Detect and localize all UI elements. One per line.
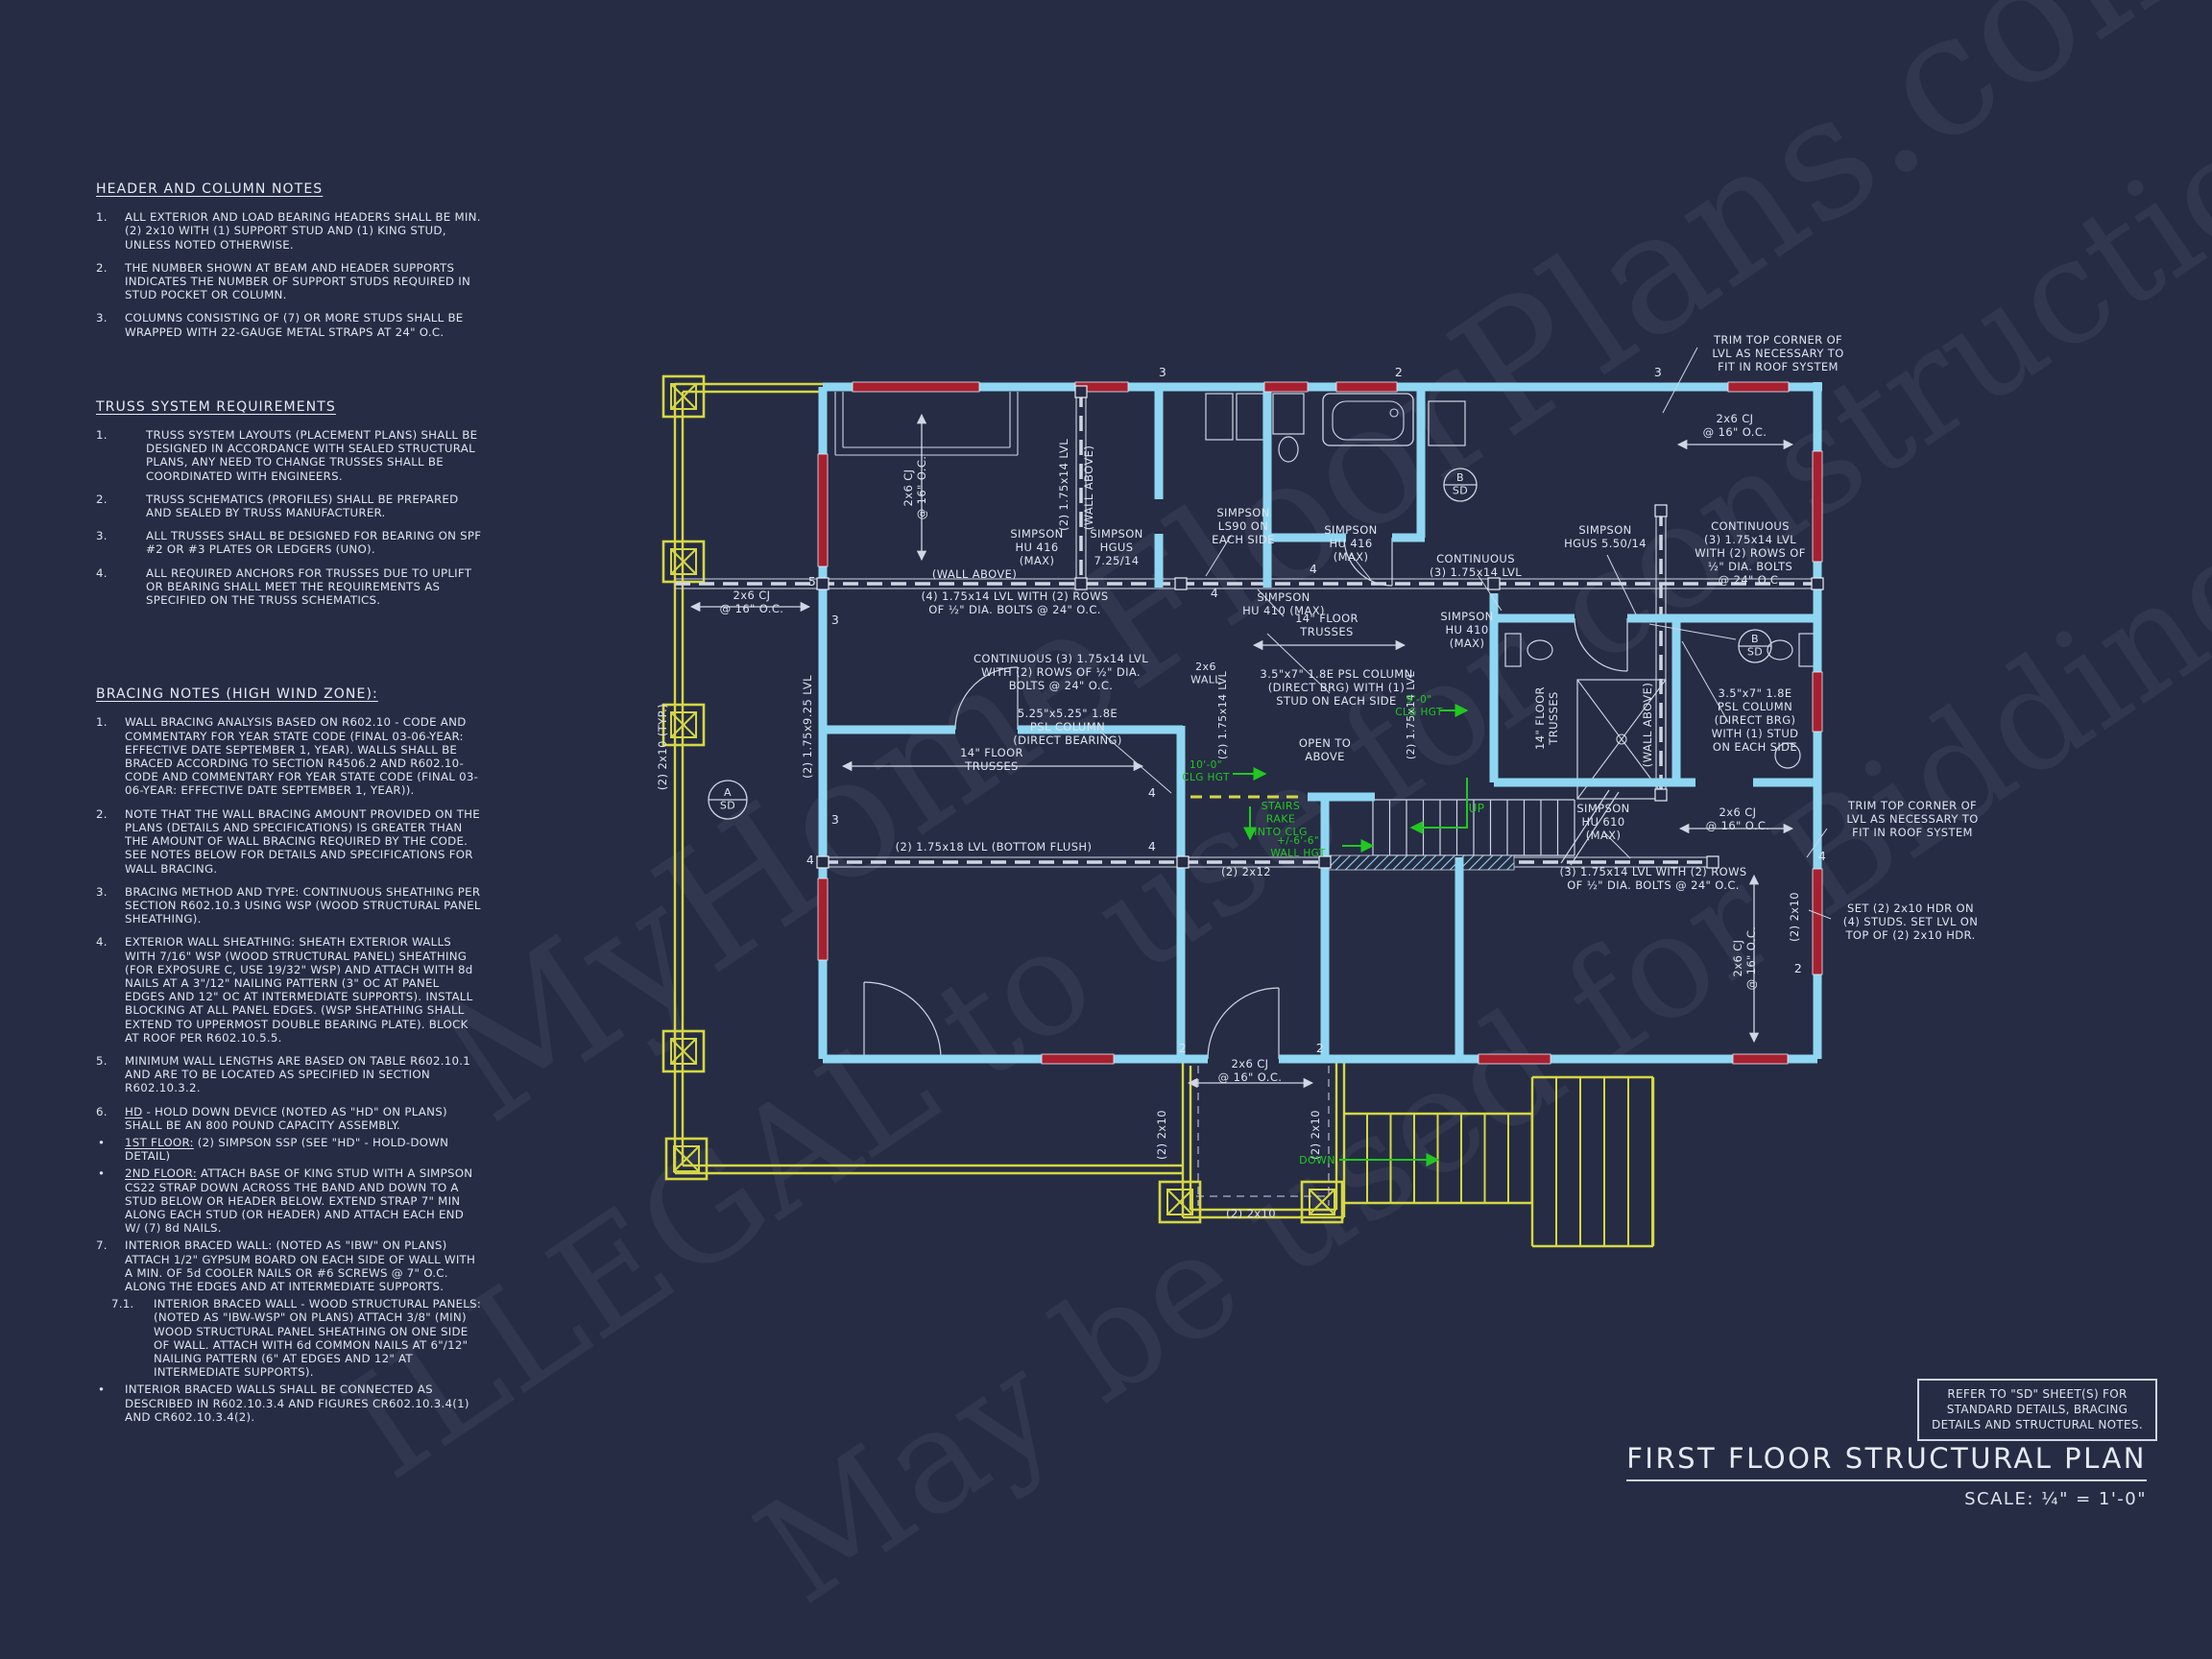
stud-pocket <box>1812 578 1823 589</box>
plan-label: SIMPSONHU 410(MAX) <box>1440 610 1493 650</box>
fixture <box>1206 394 1233 440</box>
plan-label: TRIM TOP CORNER OFLVL AS NECESSARY TOFIT… <box>1712 333 1843 373</box>
plan-label: (2) 2x10 <box>1309 1110 1322 1160</box>
sd-reference-note: REFER TO "SD" SHEET(S) FOR STANDARD DETA… <box>1917 1379 2157 1441</box>
plan-label: TRIM TOP CORNER OFLVL AS NECESSARY TOFIT… <box>1846 799 1978 839</box>
drawing-sheet: MyHomeFloorPlans.com ILLEGAL to use for … <box>0 0 2212 1659</box>
braced-wall-panel <box>1264 382 1308 392</box>
fixture <box>1799 634 1815 666</box>
plan-label: 4 <box>1148 785 1156 800</box>
plan-label: 2 <box>1395 365 1403 379</box>
plan-label: 3 <box>831 613 839 627</box>
braced-wall-panel <box>853 382 979 392</box>
plan-label: 4 <box>1211 586 1218 600</box>
sheet-scale: SCALE: ¼" = 1'-0" <box>1626 1489 2147 1509</box>
door-swing <box>1575 618 1627 671</box>
plan-label: SIMPSONHGUS7.25/14 <box>1090 527 1142 567</box>
plan-label: (2) 1.75x14 LVL <box>1216 670 1229 759</box>
fixture <box>1237 394 1263 440</box>
plan-label: SIMPSONLS90 ONEACH SIDE <box>1212 506 1275 546</box>
toilet <box>1527 640 1552 660</box>
plan-label: 2x6 CJ@ 16" O.C. <box>902 456 928 520</box>
plan-label: STAIRSRAKEINTO CLG <box>1254 800 1308 838</box>
floor-plan: TRIM TOP CORNER OFLVL AS NECESSARY TOFIT… <box>0 0 2212 1659</box>
sheet-title: FIRST FLOOR STRUCTURAL PLAN <box>1626 1442 2147 1481</box>
braced-wall-panel <box>1813 672 1822 732</box>
braced-wall-panel <box>1813 451 1822 562</box>
plan-label: SIMPSONHU 610(MAX) <box>1576 802 1629 842</box>
braced-wall-panel <box>1336 382 1397 392</box>
stud-pocket <box>1175 578 1187 589</box>
plan-label: (2) 1.75x9.25 LVL <box>801 675 814 779</box>
stud-pocket <box>1655 789 1667 801</box>
plan-label: 14" FLOORTRUSSES <box>1533 686 1560 750</box>
plan-label: 10'-0"CLG HGT <box>1182 759 1230 783</box>
braced-wall-panel <box>1042 1054 1114 1064</box>
plan-label: (2) 2x10 <box>1226 1207 1276 1220</box>
plan-label: 14" FLOORTRUSSES <box>1295 612 1358 638</box>
plan-label: CONTINUOUS (3) 1.75x14 LVLWITH (2) ROWS … <box>974 652 1148 692</box>
plan-label: 3 <box>831 812 839 827</box>
plan-label: 3 <box>1654 365 1662 379</box>
braced-wall-panel <box>1728 382 1789 392</box>
plan-label: SET (2) 2x10 HDR ON(4) STUDS. SET LVL ON… <box>1843 902 1979 942</box>
plan-label: (2) 2x10 <box>1155 1110 1168 1160</box>
plan-label: 9'-0"CLG HGT <box>1395 694 1443 718</box>
plan-label: (4) 1.75x14 LVL WITH (2) ROWSOF ½" DIA. … <box>921 589 1108 616</box>
plan-label: 3 <box>1159 365 1166 379</box>
plan-label: CONTINUOUS(3) 1.75x14 LVL <box>1430 552 1522 579</box>
stud-pocket <box>1075 386 1087 397</box>
plan-label: 2x6 CJ@ 16" O.C. <box>1706 805 1770 832</box>
plan-label: (2) 2x10 (TYP.) <box>656 704 669 790</box>
braced-wall-panel <box>818 454 828 566</box>
plan-label: 4 <box>1148 839 1156 854</box>
plan-label: SIMPSONHGUS 5.50/14 <box>1564 523 1647 550</box>
plan-label: 2x6 CJ@ 16" O.C. <box>1731 926 1758 991</box>
braced-wall-panel <box>1813 869 1822 974</box>
plan-label: BSD <box>1747 633 1763 658</box>
braced-wall-panel <box>1733 1054 1788 1064</box>
stud-pocket <box>817 856 829 868</box>
plan-label: 2x6 CJ@ 16" O.C. <box>1218 1057 1283 1084</box>
plan-label: UP <box>1469 802 1485 815</box>
plan-label: 3.5"x7" 1.8E PSL COLUMN(DIRECT BRG) WITH… <box>1260 667 1412 708</box>
plan-label: 14" FLOORTRUSSES <box>960 746 1023 773</box>
plan-label: 4 <box>806 853 814 867</box>
toilet <box>1279 437 1298 462</box>
plan-label: (2) 1.75x18 LVL (BOTTOM FLUSH) <box>896 840 1093 854</box>
plan-label: ASD <box>720 786 735 811</box>
plan-label: 5 <box>808 574 816 589</box>
stud-pocket <box>817 578 829 589</box>
plan-label: (WALL ABOVE) <box>1082 445 1095 530</box>
floor-opening-hatch <box>1328 855 1514 870</box>
plan-label: +/-6'-6"WALL HGT <box>1270 835 1325 859</box>
braced-wall-panel <box>1479 1054 1551 1064</box>
plan-label: 2 <box>1179 1041 1187 1055</box>
plan-label: DOWN <box>1299 1154 1335 1166</box>
stud-pocket <box>1488 578 1500 589</box>
fixture <box>1273 394 1304 434</box>
plan-label: CONTINUOUS(3) 1.75x14 LVLWITH (2) ROWS O… <box>1695 519 1805 587</box>
title-block: FIRST FLOOR STRUCTURAL PLAN SCALE: ¼" = … <box>1626 1442 2147 1509</box>
fixture <box>1429 401 1465 445</box>
plan-label: (2) 2x12 <box>1221 865 1271 878</box>
plan-label: 2x6 CJ@ 16" O.C. <box>1703 412 1767 439</box>
door-swing <box>864 982 941 1059</box>
plan-label: (2) 1.75x14 LVL <box>1057 439 1070 531</box>
plan-label: 2 <box>1794 961 1802 975</box>
stud-pocket <box>1655 505 1667 517</box>
plan-label: SIMPSONHU 416(MAX) <box>1324 523 1377 564</box>
plan-label: (3) 1.75x14 LVL WITH (2) ROWSOF ½" DIA. … <box>1559 865 1746 892</box>
plan-label: 2 <box>1316 1041 1324 1055</box>
plan-label: (WALL ABOVE) <box>932 567 1017 581</box>
tub-drain <box>1390 409 1398 417</box>
braced-wall-panel <box>818 878 828 960</box>
door-swing <box>1208 988 1279 1059</box>
bathtub <box>1333 401 1404 440</box>
green-annotation-line <box>1411 778 1467 828</box>
plan-label: 4 <box>1818 849 1826 863</box>
plan-label: 3.5"x7" 1.8EPSL COLUMN(DIRECT BRG)WITH (… <box>1712 686 1799 754</box>
stud-pocket <box>1075 578 1087 589</box>
plan-label: (WALL ABOVE) <box>1641 683 1654 767</box>
leader-line <box>1663 348 1697 413</box>
plan-label: 2x6 CJ@ 16" O.C. <box>720 589 784 615</box>
plan-label: 4 <box>1310 562 1317 576</box>
plan-label: OPEN TOABOVE <box>1299 736 1351 763</box>
plan-label: BSD <box>1453 471 1468 496</box>
fixture <box>1505 634 1521 666</box>
plan-label: (2) 2x10 <box>1788 892 1801 942</box>
stud-pocket <box>1177 856 1189 868</box>
plan-label: SIMPSONHU 416(MAX) <box>1010 527 1063 567</box>
